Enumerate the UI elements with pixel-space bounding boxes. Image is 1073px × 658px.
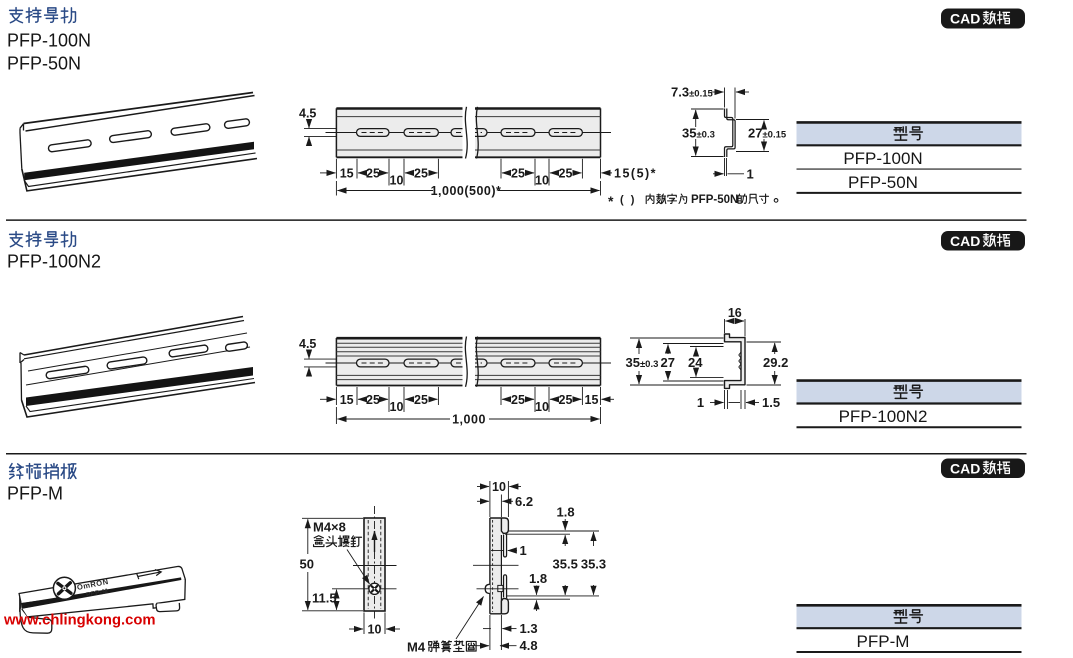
svg-text:PFP-100N: PFP-100N [7, 31, 91, 51]
svg-text:10: 10 [368, 623, 382, 637]
svg-text:M4×8: M4×8 [313, 520, 346, 535]
svg-text:PFP-50N: PFP-50N [7, 54, 81, 74]
svg-text:PFP-M: PFP-M [857, 632, 910, 651]
svg-text:CAD: CAD [950, 460, 980, 476]
svg-text:25: 25 [414, 167, 428, 181]
svg-text:25: 25 [511, 393, 525, 407]
svg-text:1.3: 1.3 [520, 621, 538, 636]
svg-text:35.5: 35.5 [553, 557, 578, 572]
svg-text:11.5: 11.5 [312, 591, 337, 606]
svg-text:25: 25 [366, 393, 380, 407]
svg-text:25: 25 [559, 167, 573, 181]
svg-text:1.8: 1.8 [529, 571, 547, 586]
svg-text:CAD: CAD [950, 233, 980, 249]
svg-text:PFP-50N: PFP-50N [848, 173, 918, 192]
svg-text:29.2: 29.2 [763, 355, 788, 370]
svg-text:25: 25 [559, 393, 573, 407]
svg-text:15(5)*: 15(5)* [614, 167, 657, 181]
svg-text:1: 1 [747, 166, 754, 181]
svg-text:6.2: 6.2 [515, 494, 533, 509]
svg-text:15: 15 [585, 393, 599, 407]
svg-text:1: 1 [697, 395, 704, 410]
svg-text:4.8: 4.8 [520, 638, 538, 653]
svg-text:PFP-50N: PFP-50N [691, 194, 738, 206]
svg-text:15: 15 [340, 393, 354, 407]
svg-text:27: 27 [661, 355, 675, 370]
svg-text:M4: M4 [407, 640, 426, 655]
svg-text:10: 10 [492, 480, 506, 494]
svg-text:25: 25 [414, 393, 428, 407]
svg-text:PFP-M: PFP-M [7, 484, 63, 504]
svg-text:1: 1 [520, 543, 527, 558]
svg-text:CAD: CAD [950, 11, 980, 27]
svg-text:50: 50 [300, 557, 314, 572]
svg-text:10: 10 [535, 400, 549, 414]
svg-text:10: 10 [390, 174, 404, 188]
svg-text:1,000(500)*: 1,000(500)* [431, 184, 502, 198]
svg-text:25: 25 [366, 167, 380, 181]
svg-text:35.3: 35.3 [581, 557, 606, 572]
svg-text:*: * [608, 193, 614, 209]
svg-text:1.8: 1.8 [557, 505, 575, 520]
svg-text:1.5: 1.5 [762, 395, 780, 410]
svg-text:24: 24 [688, 355, 703, 370]
svg-text:4.5: 4.5 [299, 107, 316, 121]
svg-text:( ): ( ) [620, 194, 636, 206]
svg-text:4.5: 4.5 [299, 337, 316, 351]
svg-text:16: 16 [728, 306, 742, 320]
svg-text:15: 15 [340, 167, 354, 181]
svg-text:1,000: 1,000 [452, 413, 486, 427]
svg-text:10: 10 [535, 174, 549, 188]
svg-text:PFP-100N: PFP-100N [843, 149, 922, 168]
svg-text:PFP-100N2: PFP-100N2 [7, 252, 101, 272]
svg-text:PFP-100N2: PFP-100N2 [839, 407, 928, 426]
svg-text:10: 10 [390, 400, 404, 414]
svg-text:www.chlingkong.com: www.chlingkong.com [3, 613, 156, 629]
svg-text:25: 25 [511, 167, 525, 181]
